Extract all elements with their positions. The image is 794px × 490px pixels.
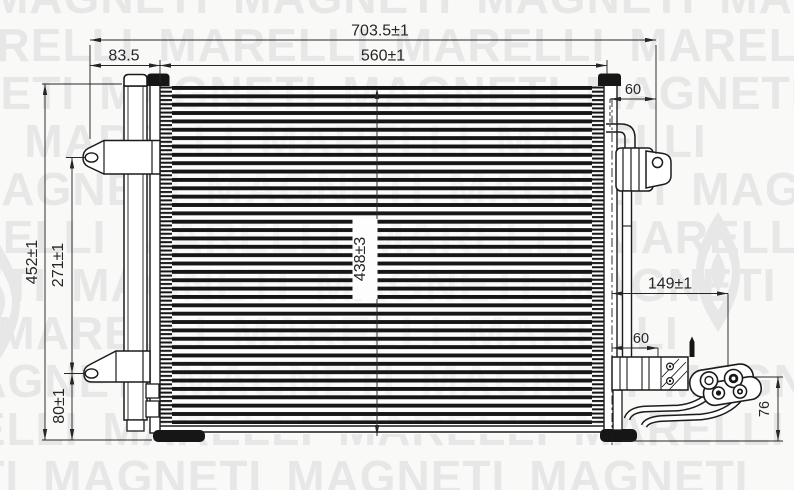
- lower-left-bracket: [84, 351, 150, 382]
- upper-left-bracket: [83, 141, 160, 175]
- condenser-core: [156, 86, 606, 434]
- outlet-fitting: [612, 337, 763, 431]
- right-tube: [623, 191, 632, 358]
- condenser-drawing: 703.5±1 560±1 83.5 60 452±1 271±1 80±1 4…: [0, 0, 794, 490]
- dim-outlet-offset: 149±1: [648, 276, 692, 293]
- dim-lower-right-inset: 60: [633, 331, 649, 347]
- dim-core-height: 438±3: [352, 237, 369, 281]
- dim-overall-width: 703.5±1: [351, 23, 409, 40]
- dim-outlet-drop: 76: [757, 401, 773, 417]
- dim-overall-height: 452±1: [24, 240, 41, 284]
- dim-bracket-pitch: 271±1: [50, 243, 67, 287]
- dim-lower-bracket-offset: 80±1: [51, 388, 68, 424]
- dim-top-right-inset: 60: [625, 82, 641, 98]
- dim-core-width: 560±1: [361, 48, 405, 65]
- technical-drawing-page: MAGNETI MAGNETI MAGNETI MAGNETI MARELLI …: [0, 0, 794, 490]
- dim-drier-offset: 83.5: [108, 48, 139, 65]
